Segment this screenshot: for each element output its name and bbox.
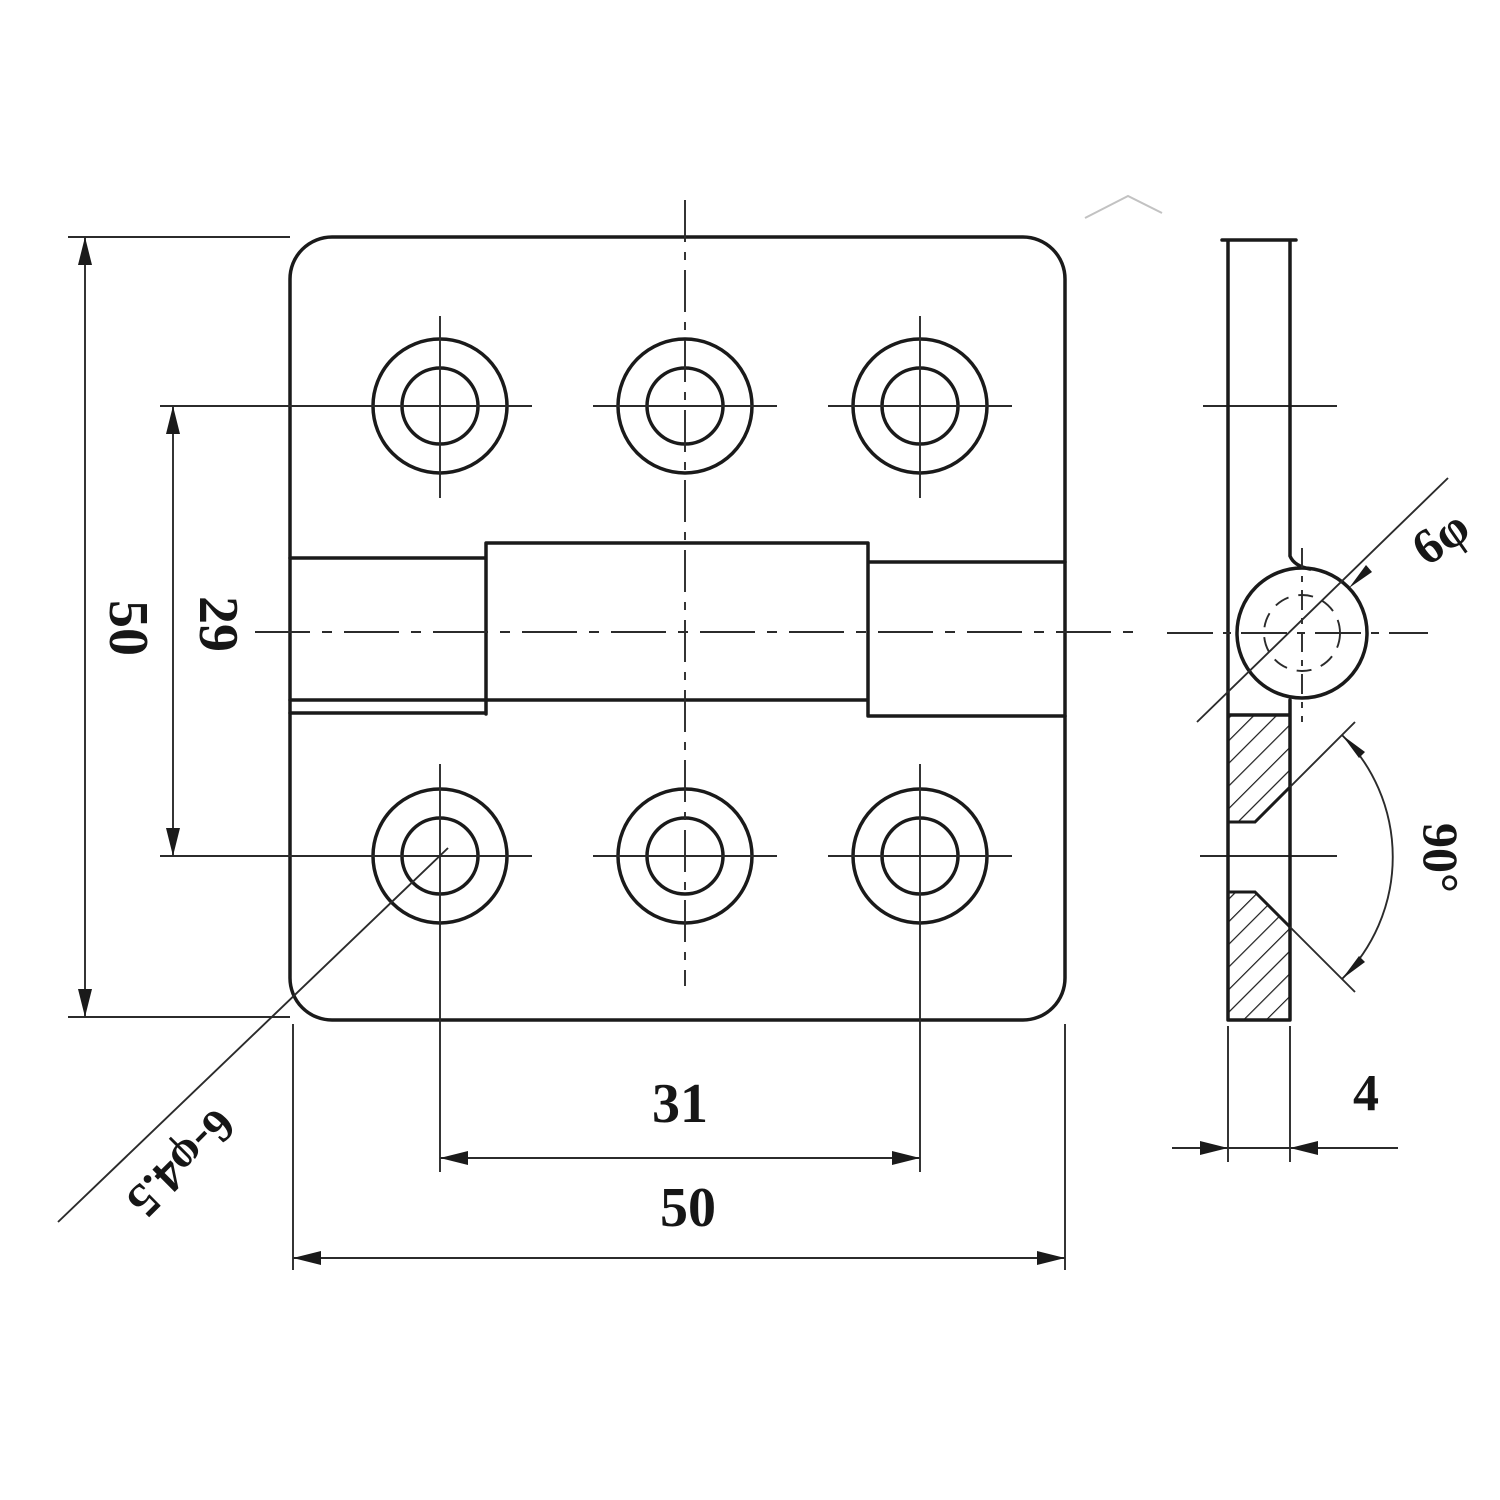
dim-width-label: 50 [660, 1177, 716, 1239]
dim-barrel-diameter-label: 6φ [1401, 498, 1479, 576]
dim-countersink-angle-label: 90° [1413, 823, 1469, 893]
hole-callout-label: 6-φ4.5 [116, 1098, 245, 1227]
scan-artifact-mark [1085, 196, 1162, 218]
side-view-arrowheads [1200, 565, 1372, 1155]
side-view: 6φ 90° 4 [1167, 240, 1479, 1162]
barrel-diameter-leader-line [1197, 478, 1448, 722]
hole-centerlines [160, 316, 1337, 1172]
dimension-lines [85, 237, 1065, 1258]
section-hatch-lower [1228, 892, 1290, 1020]
hinge-knuckle-lines [290, 543, 1065, 716]
dim-height-label: 50 [97, 600, 159, 656]
dim-hole-col-spacing-label: 31 [652, 1073, 708, 1135]
hinge-plate-outline [290, 237, 1065, 1020]
dimension-arrowheads [78, 237, 1065, 1265]
countersink-angle-arc [1342, 735, 1393, 979]
countersink-angle-rays [1290, 722, 1355, 992]
dim-hole-row-spacing-label: 29 [187, 596, 249, 652]
section-hatch-upper [1228, 715, 1290, 822]
dim-thickness-label: 4 [1353, 1065, 1379, 1122]
front-view: 50 29 31 50 6-φ4.5 [58, 196, 1337, 1270]
hole-callout-leader-line [58, 848, 448, 1222]
technical-drawing-page: 50 29 31 50 6-φ4.5 6φ 90° 4 [0, 0, 1500, 1500]
technical-drawing-canvas: 50 29 31 50 6-φ4.5 6φ 90° 4 [0, 0, 1500, 1500]
